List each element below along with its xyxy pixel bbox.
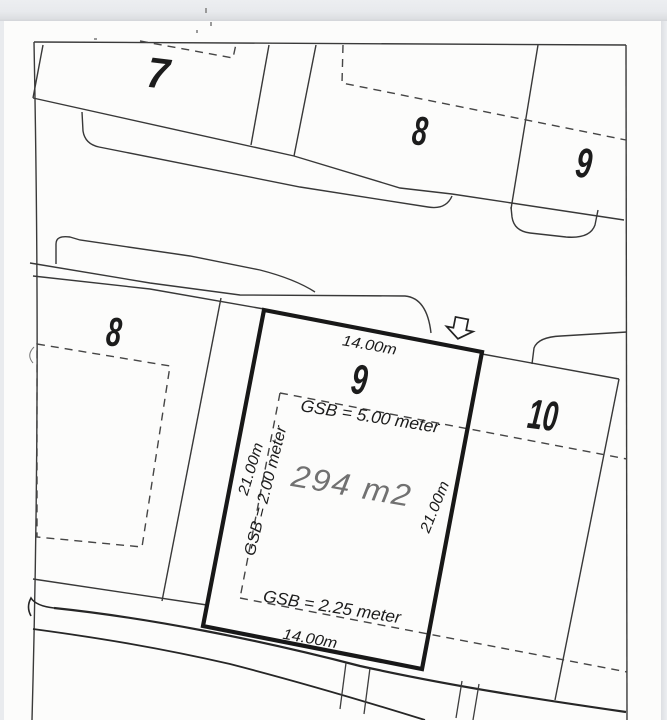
svg-text:9: 9 <box>349 355 371 404</box>
svg-text:8: 8 <box>104 308 124 355</box>
svg-text:294 m2: 294 m2 <box>288 458 415 514</box>
svg-text:9: 9 <box>573 139 595 188</box>
svg-text:10: 10 <box>525 390 561 440</box>
svg-text:GSB = 2.25 meter: GSB = 2.25 meter <box>262 587 404 628</box>
svg-text:7: 7 <box>144 49 174 100</box>
svg-text:8: 8 <box>410 107 431 155</box>
svg-text:GSB = 5.00 meter: GSB = 5.00 meter <box>299 396 442 437</box>
